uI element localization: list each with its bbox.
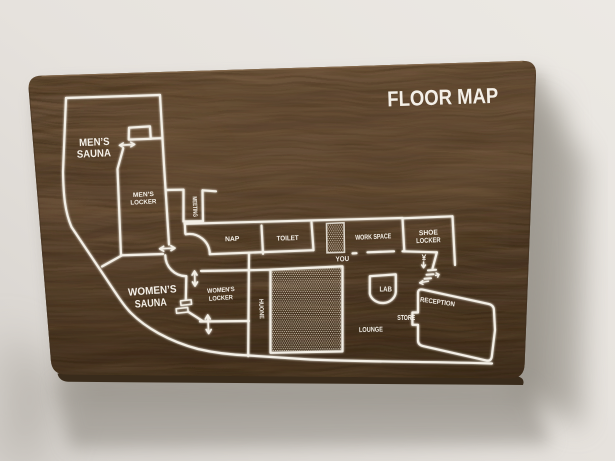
svg-text:FLOOR MAP: FLOOR MAP xyxy=(387,84,499,112)
svg-text:SAUNA: SAUNA xyxy=(77,147,112,160)
svg-text:STORE: STORE xyxy=(397,315,415,322)
svg-text:LOCKER: LOCKER xyxy=(416,237,441,245)
svg-text:LAB: LAB xyxy=(379,287,392,294)
svg-text:LOUNGE: LOUNGE xyxy=(359,326,383,334)
svg-text:HUONE: HUONE xyxy=(257,299,265,319)
svg-text:YOU: YOU xyxy=(335,254,349,264)
svg-text:LOCKER: LOCKER xyxy=(130,198,157,206)
svg-text:SAUNA: SAUNA xyxy=(134,296,167,310)
svg-text:SHOE: SHOE xyxy=(419,229,439,237)
svg-text:¥: ¥ xyxy=(422,253,427,263)
svg-text:MEETING: MEETING xyxy=(191,196,199,217)
svg-text:TOILET: TOILET xyxy=(277,235,300,243)
svg-text:NAP: NAP xyxy=(225,236,240,244)
